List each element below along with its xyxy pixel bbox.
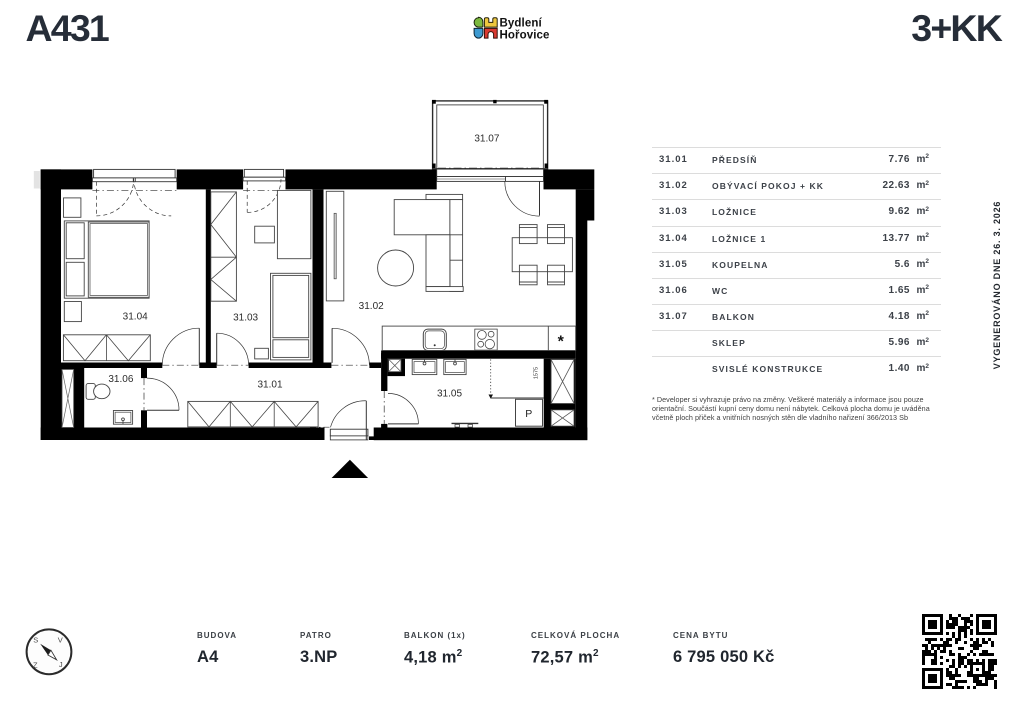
svg-text:P: P [525, 408, 532, 420]
svg-text:31.02: 31.02 [359, 301, 384, 312]
svg-text:J: J [59, 660, 63, 669]
svg-text:Z: Z [33, 660, 38, 669]
svg-text:1575: 1575 [534, 367, 540, 379]
svg-text:31.01: 31.01 [257, 379, 282, 390]
svg-text:*: * [558, 334, 565, 351]
svg-text:31.04: 31.04 [123, 311, 148, 322]
svg-text:31.03: 31.03 [233, 313, 258, 324]
svg-text:31.07: 31.07 [474, 133, 499, 144]
svg-text:31.05: 31.05 [437, 389, 462, 400]
svg-text:31.06: 31.06 [108, 374, 133, 385]
svg-text:V: V [58, 636, 63, 645]
svg-text:S: S [33, 635, 38, 644]
